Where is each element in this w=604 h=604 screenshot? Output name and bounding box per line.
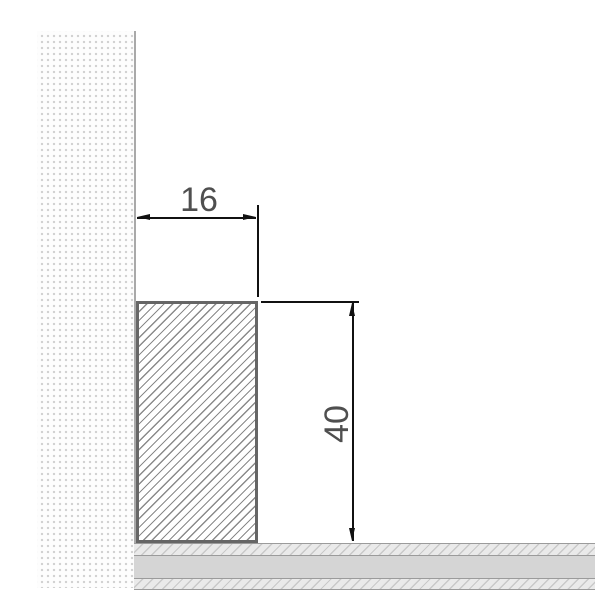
arrowhead-right-icon	[243, 214, 256, 220]
dimension-height-value: 40	[320, 394, 354, 454]
wall-section	[37, 31, 136, 588]
arrowhead-up-icon	[349, 303, 355, 316]
dimension-width-value: 16	[169, 183, 229, 217]
floor-layer-middle-solid	[134, 556, 595, 578]
floor-layer-bottom-hatched	[134, 578, 595, 590]
extension-line-vertical	[257, 205, 259, 297]
floor-layer-top-hatched	[134, 543, 595, 556]
arrowhead-left-icon	[137, 214, 150, 220]
arrowhead-down-icon	[349, 528, 355, 541]
extension-line-horizontal	[261, 301, 359, 303]
profile-cross-section	[136, 301, 258, 543]
technical-drawing-canvas: 16 40	[0, 0, 604, 604]
floor-section	[134, 543, 595, 590]
